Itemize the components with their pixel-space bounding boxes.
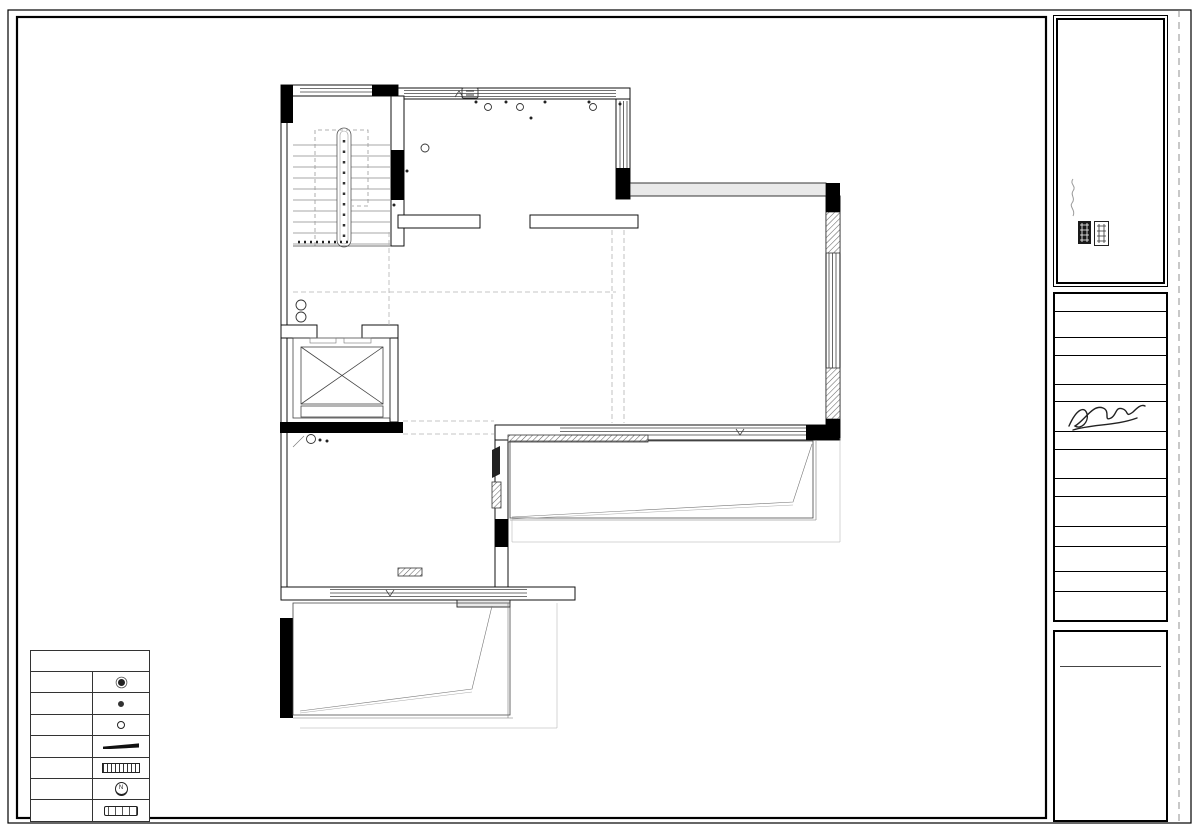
balcony bbox=[293, 436, 557, 728]
solid-wall bbox=[391, 150, 404, 200]
drawing-sheet: N bbox=[0, 0, 1200, 833]
seal-stamp bbox=[1078, 221, 1091, 244]
power-box-symbol bbox=[492, 446, 500, 478]
drawing-no-value-row bbox=[1055, 547, 1166, 572]
manifold-icon bbox=[104, 806, 138, 816]
beam-lines bbox=[293, 230, 624, 434]
drain-pipe-icon bbox=[117, 721, 125, 729]
walls bbox=[280, 85, 840, 718]
plan-title bbox=[845, 753, 1055, 775]
logo-block bbox=[1053, 15, 1168, 287]
legend-label bbox=[31, 736, 93, 756]
legend-row-toilet bbox=[31, 693, 149, 714]
note-2-en bbox=[1055, 683, 1166, 685]
manifold-symbol bbox=[398, 568, 422, 576]
legend-table: N bbox=[30, 650, 150, 822]
approver-value-row bbox=[1055, 497, 1166, 527]
column bbox=[806, 425, 838, 440]
legend-row-floor-drain bbox=[31, 672, 149, 693]
terrace bbox=[510, 438, 840, 542]
power-box-icon bbox=[103, 743, 139, 749]
note-1-cn bbox=[1055, 667, 1166, 674]
note-2-cn bbox=[1055, 676, 1166, 683]
legend-row-media-box bbox=[31, 758, 149, 779]
fixture-symbols bbox=[307, 88, 622, 576]
floor-drain-icon bbox=[118, 679, 125, 686]
drawing-no-label-row bbox=[1055, 527, 1166, 547]
legend-row-intercom: N bbox=[31, 779, 149, 800]
solid-wall bbox=[280, 618, 293, 718]
legend-label bbox=[31, 672, 93, 692]
solid-wall bbox=[280, 422, 403, 433]
drafter-value-row bbox=[1055, 450, 1166, 479]
legend-title bbox=[31, 651, 149, 672]
pipe-symbol bbox=[296, 312, 306, 322]
staircase bbox=[293, 128, 391, 247]
legend-label bbox=[31, 693, 93, 713]
media-box-symbol bbox=[492, 482, 501, 508]
intercom-icon: N bbox=[115, 782, 128, 796]
column bbox=[616, 168, 630, 199]
legend-label bbox=[31, 779, 93, 799]
calligraphy-signature bbox=[1066, 176, 1080, 222]
media-box-icon bbox=[102, 763, 140, 773]
legend-row-manifold bbox=[31, 800, 149, 820]
pipe-symbol bbox=[296, 300, 306, 310]
column bbox=[372, 85, 398, 96]
scale-value-row bbox=[1055, 592, 1166, 621]
legend-row-drain-pipe bbox=[31, 715, 149, 736]
legend-label bbox=[31, 800, 93, 820]
drawing-title-value-row bbox=[1055, 356, 1166, 385]
project-value-row bbox=[1055, 312, 1166, 338]
legend-row-power-box bbox=[31, 736, 149, 757]
project-label-row bbox=[1055, 294, 1166, 312]
elevator-shaft bbox=[293, 300, 390, 418]
logo-border bbox=[1056, 18, 1165, 284]
seal-stamp bbox=[1094, 221, 1109, 246]
designer-signature bbox=[1063, 396, 1153, 434]
column bbox=[281, 85, 293, 123]
title-block bbox=[1053, 292, 1168, 622]
approver-label-row bbox=[1055, 479, 1166, 497]
designer-signature-row bbox=[1055, 402, 1166, 432]
company-block bbox=[1053, 630, 1168, 822]
legend-label bbox=[31, 758, 93, 778]
drawing-title-label-row bbox=[1055, 338, 1166, 356]
toilet-icon bbox=[118, 701, 124, 707]
scale-label-row bbox=[1055, 572, 1166, 592]
legend-label bbox=[31, 715, 93, 735]
column bbox=[826, 183, 840, 212]
sheet-frame bbox=[8, 10, 1191, 823]
floor-plan bbox=[0, 0, 1200, 833]
drafter-label-row bbox=[1055, 432, 1166, 450]
column bbox=[495, 519, 508, 547]
